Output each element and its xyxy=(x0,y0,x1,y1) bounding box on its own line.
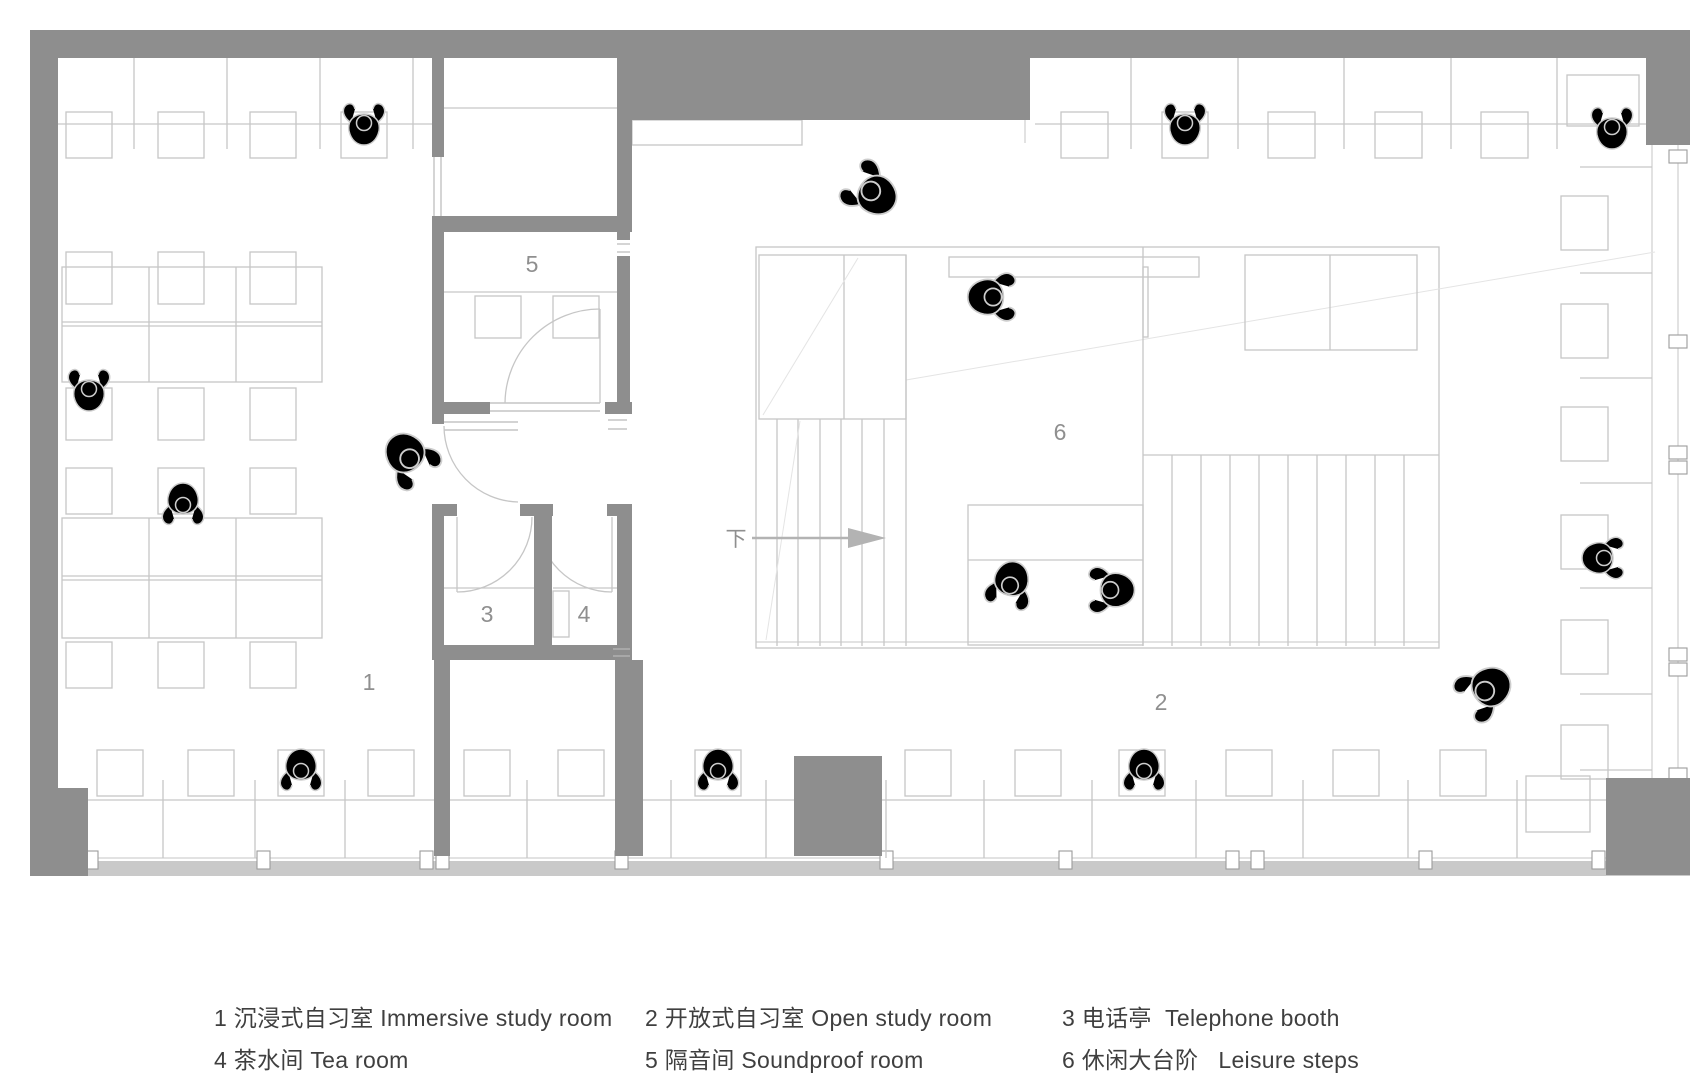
room4-sink xyxy=(553,591,569,637)
storage-right-wall xyxy=(617,58,632,232)
furniture-layer xyxy=(58,58,1652,858)
legend-item-soundproof-room: 5 隔音间 Soundproof room xyxy=(645,1041,924,1075)
entry-block xyxy=(794,756,882,856)
down-label: 下 xyxy=(726,528,747,551)
top-center-block xyxy=(632,30,1030,120)
floor-plan-svg: 1 2 3 4 5 6 下 xyxy=(0,0,1700,1088)
left-stairs xyxy=(766,255,906,646)
corridor-door xyxy=(444,420,627,502)
room5-furniture xyxy=(444,292,617,411)
top-wall-right xyxy=(1030,30,1646,58)
person-figure-walking xyxy=(1450,654,1522,726)
room5-right-wall xyxy=(617,256,630,402)
top-right-corner-block xyxy=(1646,30,1690,145)
bottom-right-desk xyxy=(1526,776,1590,832)
person-figure xyxy=(68,370,109,411)
room5-bottom-wall-right xyxy=(605,402,632,414)
person-figure-walking xyxy=(836,156,908,228)
room-label-2: 2 xyxy=(1155,689,1168,715)
person-figure xyxy=(1164,104,1205,145)
legend-item-leisure-steps: 6 休闲大台阶 Leisure steps xyxy=(1062,1041,1359,1075)
steps-left-platform xyxy=(759,255,906,419)
bottom-right-block xyxy=(1606,778,1690,875)
room-label-4: 4 xyxy=(578,601,591,627)
room-label-3: 3 xyxy=(481,601,494,627)
room-label-1: 1 xyxy=(363,669,376,695)
steps-top-bench xyxy=(949,257,1199,277)
room4-right-wall xyxy=(617,504,632,660)
legend-item-telephone-booth: 3 电话亭 Telephone booth xyxy=(1062,999,1340,1033)
person-figure xyxy=(697,749,738,790)
left-wall-step xyxy=(58,788,88,876)
storage-left-wall xyxy=(432,58,444,157)
room2-right-seat-column xyxy=(1561,167,1652,779)
right-pier xyxy=(615,660,643,856)
section-line xyxy=(906,252,1655,380)
person-figure xyxy=(1591,108,1632,149)
person-figure xyxy=(1089,567,1135,613)
room3-furniture xyxy=(444,517,534,592)
person-figure xyxy=(280,749,321,790)
room-label-6: 6 xyxy=(1054,419,1067,445)
room34-middle-wall xyxy=(534,516,552,660)
person-figure xyxy=(1582,537,1623,578)
room34-bottom-wall xyxy=(432,645,632,660)
left-pier xyxy=(434,660,450,856)
figures-layer xyxy=(68,104,1632,791)
bottom-sill-band xyxy=(58,861,1690,876)
right-stairs xyxy=(1143,455,1439,646)
legend-item-immersive-study-room: 1 沉浸式自习室 Immersive study room xyxy=(214,999,613,1033)
room5-top-wall xyxy=(432,216,632,232)
corridor-door-arc xyxy=(444,426,518,502)
room1-table-cluster-1 xyxy=(62,252,322,440)
room3-left-wall xyxy=(432,504,444,660)
person-figure xyxy=(343,104,384,145)
down-arrow-icon xyxy=(848,528,886,548)
leisure-steps-block xyxy=(752,247,1655,648)
steps-right-platform xyxy=(1245,255,1417,350)
room2-top-desk-row xyxy=(1035,58,1652,158)
wardrobe-shelf xyxy=(632,120,802,145)
person-figure xyxy=(982,556,1038,612)
legend-item-open-study-room: 2 开放式自习室 Open study room xyxy=(645,999,992,1033)
person-figure-walking xyxy=(372,421,445,494)
legend-item-tea-room: 4 茶水间 Tea room xyxy=(214,1041,409,1075)
room-label-5: 5 xyxy=(526,251,539,277)
room3-door-arc xyxy=(457,517,532,592)
left-wall xyxy=(30,30,58,876)
floor-plan-page: 1 2 3 4 5 6 下 1 沉浸式自习室 Immersive study r… xyxy=(0,0,1700,1088)
top-wall-left xyxy=(30,30,635,58)
person-figure xyxy=(968,273,1016,321)
walls-layer xyxy=(30,30,1690,876)
person-figure xyxy=(1123,749,1164,790)
room5-bottom-wall-left xyxy=(432,402,490,414)
room5-left-wall xyxy=(432,216,444,424)
